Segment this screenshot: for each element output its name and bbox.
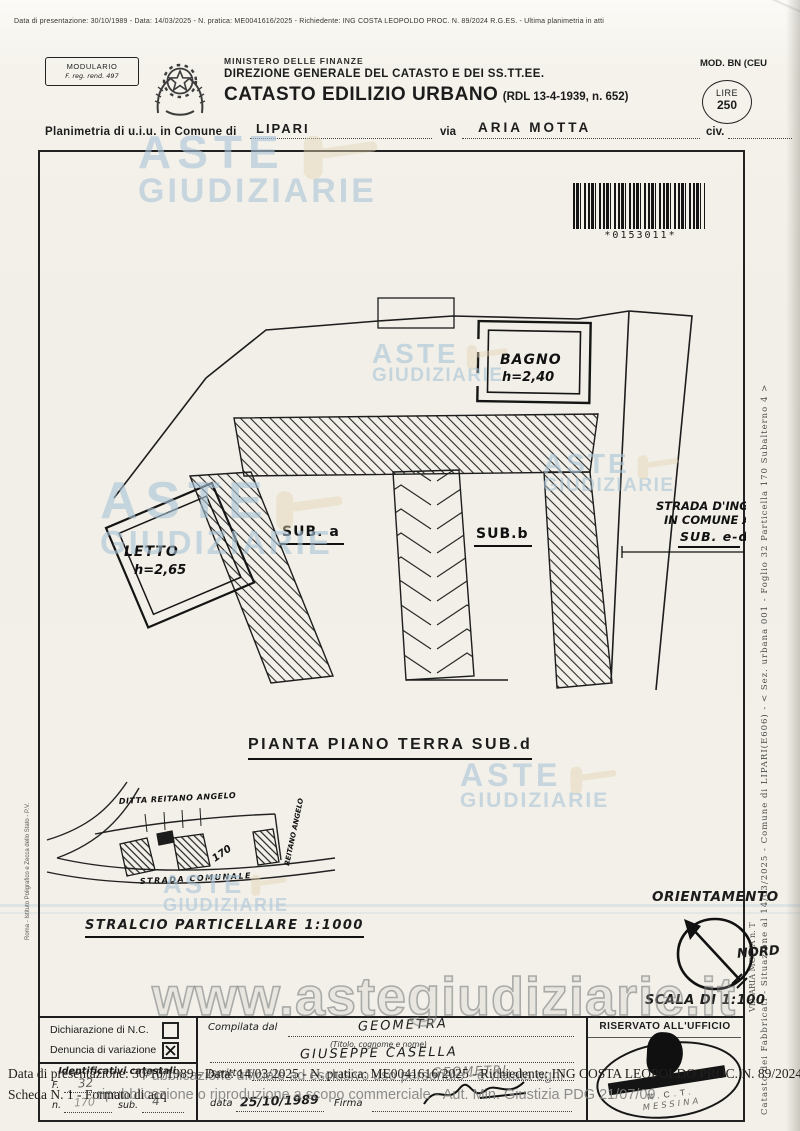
data-dotted xyxy=(236,1111,324,1112)
italy-emblem-icon xyxy=(148,55,212,119)
gavel-icon xyxy=(286,130,391,188)
checkbox-checked-icon xyxy=(164,1044,177,1057)
direction-label: DIREZIONE GENERALE DEL CATASTO E DEI SS.… xyxy=(224,68,544,80)
via-dotted-line xyxy=(462,138,700,139)
ministry-label: MINISTERO DELLE FINANZE xyxy=(224,56,364,66)
compilata-dotted xyxy=(288,1036,574,1037)
stralcio-title: STRALCIO PARTICELLARE 1:1000 xyxy=(85,918,364,938)
left-edge-vertical-text: Roma - Istituto Poligrafico e Zecca dell… xyxy=(25,770,31,940)
parcel-number: 170 xyxy=(210,843,233,864)
barcode: *0153011* xyxy=(573,183,708,241)
gavel-icon xyxy=(560,763,624,799)
gavel-icon xyxy=(629,452,685,484)
modulario-line2: F. reg. rend. 497 xyxy=(46,72,138,80)
overlay-disclaimer-line2: ripubblicazione o riproduzione a scopo c… xyxy=(97,1087,656,1103)
letto-height-label: h=2,65 xyxy=(134,563,186,578)
strada-line3: SUB. e-d xyxy=(680,529,746,544)
title-main: CATASTO EDILIZIO URBANO xyxy=(224,84,498,105)
numero-dotted xyxy=(64,1112,112,1113)
civ-label: civ. xyxy=(706,126,724,138)
lire-value: 250 xyxy=(703,98,751,112)
overlay-filing-line1: Data di presentazione: 30/10/1989 - Data… xyxy=(8,1066,800,1082)
modulario-box: MODULARIO F. reg. rend. 497 xyxy=(45,57,139,86)
dichiarazione-label: Dichiarazione di N.C. xyxy=(50,1024,149,1036)
denuncia-label: Denuncia di variazione xyxy=(50,1044,156,1056)
lire-stamp: LIRE 250 xyxy=(702,80,752,124)
modulario-line1: MODULARIO xyxy=(46,62,138,71)
overlay-filing-line2: Scheda N. 1 - Formato di acq xyxy=(8,1087,167,1103)
sub-dotted xyxy=(142,1112,184,1113)
filing-info-top: Data di presentazione: 30/10/1989 - Data… xyxy=(14,18,604,25)
firma-dotted xyxy=(372,1111,572,1112)
strada-line2: IN COMUNE AI xyxy=(664,513,746,527)
barcode-bars xyxy=(573,183,705,229)
gavel-icon xyxy=(243,872,293,900)
gavel-icon xyxy=(458,342,514,374)
reitano-vertical-label: REITANO ANGELO xyxy=(283,798,305,867)
watermark-url: www.astegiudiziarie.it xyxy=(152,966,736,1028)
strada-line1: STRADA D'INGRES xyxy=(656,499,746,513)
watermark-aste: ASTE GIUDIZIARIE xyxy=(100,476,333,559)
page-edge-shadow xyxy=(786,0,800,1131)
watermark-aste: ASTE GIUDIZIARIE xyxy=(163,872,289,915)
fold-mark xyxy=(694,0,800,26)
nome-value: GIUSEPPE CASELLA xyxy=(300,1045,458,1063)
sub-b-label: SUB.b xyxy=(476,526,528,542)
col1-inner-rule xyxy=(38,1062,196,1064)
watermark-aste: ASTE GIUDIZIARIE xyxy=(372,340,504,386)
via-value: ARIA MOTTA xyxy=(478,120,591,135)
watermark-aste: ASTE GIUDIZIARIE xyxy=(543,450,675,496)
mod-bn-label: MOD. BN (CEU xyxy=(700,58,767,69)
denuncia-checkbox xyxy=(162,1042,179,1059)
document-title: CATASTO EDILIZIO URBANO (RDL 13-4-1939, … xyxy=(224,84,628,106)
watermark-text: GIUDIZIARIE xyxy=(163,897,289,915)
lire-label: LIRE xyxy=(703,88,751,98)
gavel-icon xyxy=(260,486,355,538)
watermark-aste: ASTE GIUDIZIARIE xyxy=(138,130,377,208)
cadastral-document-page: Data di presentazione: 30/10/1989 - Data… xyxy=(0,0,800,1131)
via-label: via xyxy=(440,126,456,138)
nome-dotted xyxy=(210,1062,574,1063)
watermark-aste: ASTE GIUDIZIARIE xyxy=(460,760,609,812)
barcode-text: *0153011* xyxy=(573,230,708,241)
title-suffix: (RDL 13-4-1939, n. 652) xyxy=(503,91,629,103)
